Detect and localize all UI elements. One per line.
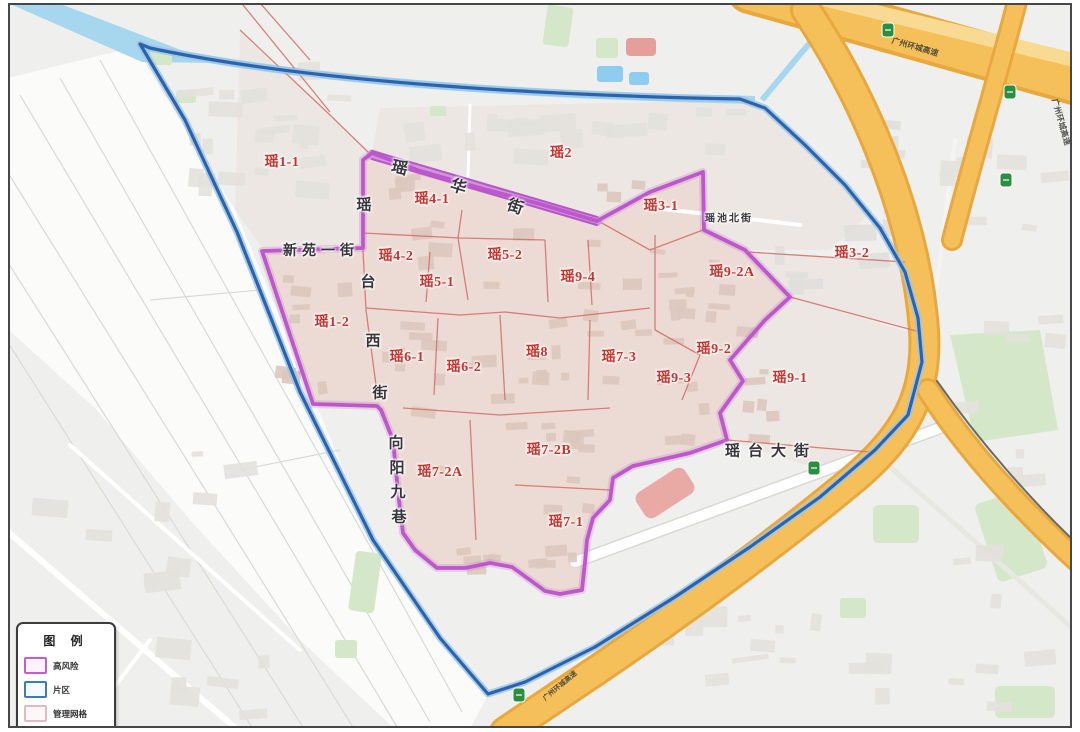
high-risk-swatch-icon	[24, 657, 47, 674]
map-screenshot: 瑶1-1瑶2瑶4-1瑶3-1瑶3-2瑶4-2瑶5-2瑶5-1瑶9-4瑶9-2A瑶…	[0, 0, 1080, 732]
legend-item-high-risk: 高风险	[24, 657, 108, 674]
legend-item-district: 片区	[24, 681, 108, 698]
basemap-canvas	[8, 3, 1072, 728]
legend: 图 例 高风险 片区 管理网格	[16, 622, 116, 728]
pool	[629, 72, 649, 85]
pool	[597, 66, 623, 82]
management-grid-swatch-icon	[24, 705, 47, 722]
legend-title: 图 例	[24, 632, 108, 649]
legend-item-management-grid: 管理网格	[24, 705, 108, 722]
district-swatch-icon	[24, 681, 47, 698]
red-field	[626, 38, 656, 56]
map-frame: 瑶1-1瑶2瑶4-1瑶3-1瑶3-2瑶4-2瑶5-2瑶5-1瑶9-4瑶9-2A瑶…	[8, 3, 1072, 728]
